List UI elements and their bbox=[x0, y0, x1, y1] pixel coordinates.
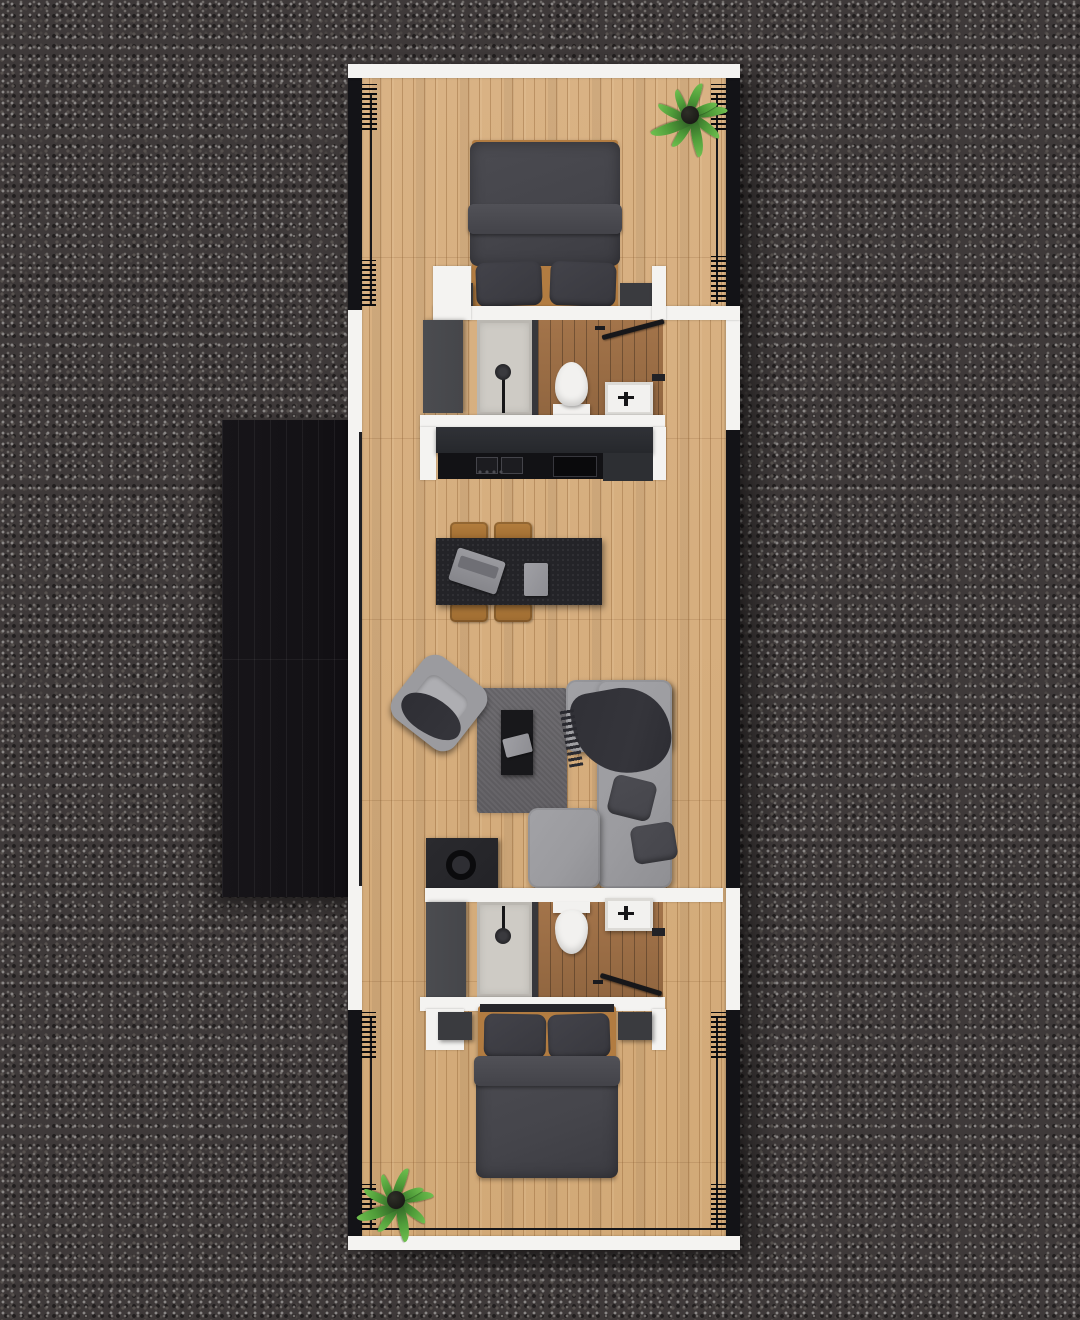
potted-plant bbox=[652, 79, 728, 155]
curtain-bundle bbox=[711, 1184, 726, 1230]
shower-glass bbox=[532, 902, 538, 997]
wall-notch bbox=[652, 374, 665, 381]
door-handle bbox=[595, 326, 605, 330]
curtain-bundle bbox=[362, 84, 377, 130]
speaker-cone bbox=[446, 850, 476, 880]
wall-stub bbox=[420, 427, 436, 480]
duvet-fold bbox=[474, 1056, 620, 1086]
sofa-chaise bbox=[528, 808, 600, 888]
curtain-bundle bbox=[361, 1012, 376, 1058]
partition-bedroom-north bbox=[433, 306, 740, 320]
deck-sliding-door bbox=[359, 432, 362, 886]
nightstand bbox=[620, 283, 653, 308]
pillow bbox=[484, 1013, 547, 1058]
dining-chair bbox=[494, 602, 532, 622]
potted-plant bbox=[358, 1164, 434, 1240]
door-handle bbox=[593, 980, 603, 984]
sofa-cushion bbox=[629, 821, 678, 865]
wall-stub bbox=[652, 266, 666, 320]
shower-head bbox=[495, 928, 511, 944]
wall-top bbox=[348, 64, 740, 78]
pillow bbox=[475, 261, 542, 307]
shower-head bbox=[495, 364, 511, 380]
nightstand bbox=[618, 1012, 652, 1040]
plant-pot bbox=[681, 106, 699, 124]
partition-bathroom-south-top bbox=[425, 888, 723, 902]
wall-stub bbox=[433, 266, 471, 320]
wall-stub bbox=[652, 1009, 666, 1050]
dining-chair bbox=[450, 602, 488, 622]
kitchen-sink bbox=[553, 456, 597, 477]
glazing-right-mid bbox=[726, 430, 740, 888]
shower-glass bbox=[532, 320, 538, 415]
appliance-block bbox=[603, 453, 653, 481]
side-deck bbox=[222, 420, 362, 897]
curtain-bundle bbox=[711, 1012, 726, 1058]
glazing-right-south bbox=[726, 1010, 740, 1236]
glazing-left-north bbox=[348, 74, 362, 310]
pillow bbox=[547, 1013, 610, 1059]
faucet bbox=[624, 392, 628, 406]
plant-pot bbox=[387, 1191, 405, 1209]
floorplan-render bbox=[0, 0, 1080, 1320]
toilet bbox=[555, 362, 588, 406]
wall-stub bbox=[652, 427, 666, 480]
faucet bbox=[624, 906, 628, 920]
wardrobe bbox=[423, 320, 463, 413]
curtain-bundle bbox=[361, 260, 376, 306]
tiny-home-building bbox=[348, 64, 740, 1250]
shower-arm bbox=[502, 378, 505, 413]
pillow bbox=[549, 261, 616, 307]
curtain-bundle bbox=[711, 256, 726, 302]
wall-notch bbox=[652, 928, 665, 936]
nightstand bbox=[438, 1012, 472, 1040]
duvet-fold bbox=[468, 204, 622, 234]
glazing-right-north bbox=[726, 74, 740, 308]
headboard bbox=[480, 1004, 614, 1012]
cooktop-knobs bbox=[478, 470, 506, 474]
wardrobe bbox=[426, 902, 466, 997]
book bbox=[524, 563, 548, 596]
kitchen-counter bbox=[436, 427, 653, 453]
